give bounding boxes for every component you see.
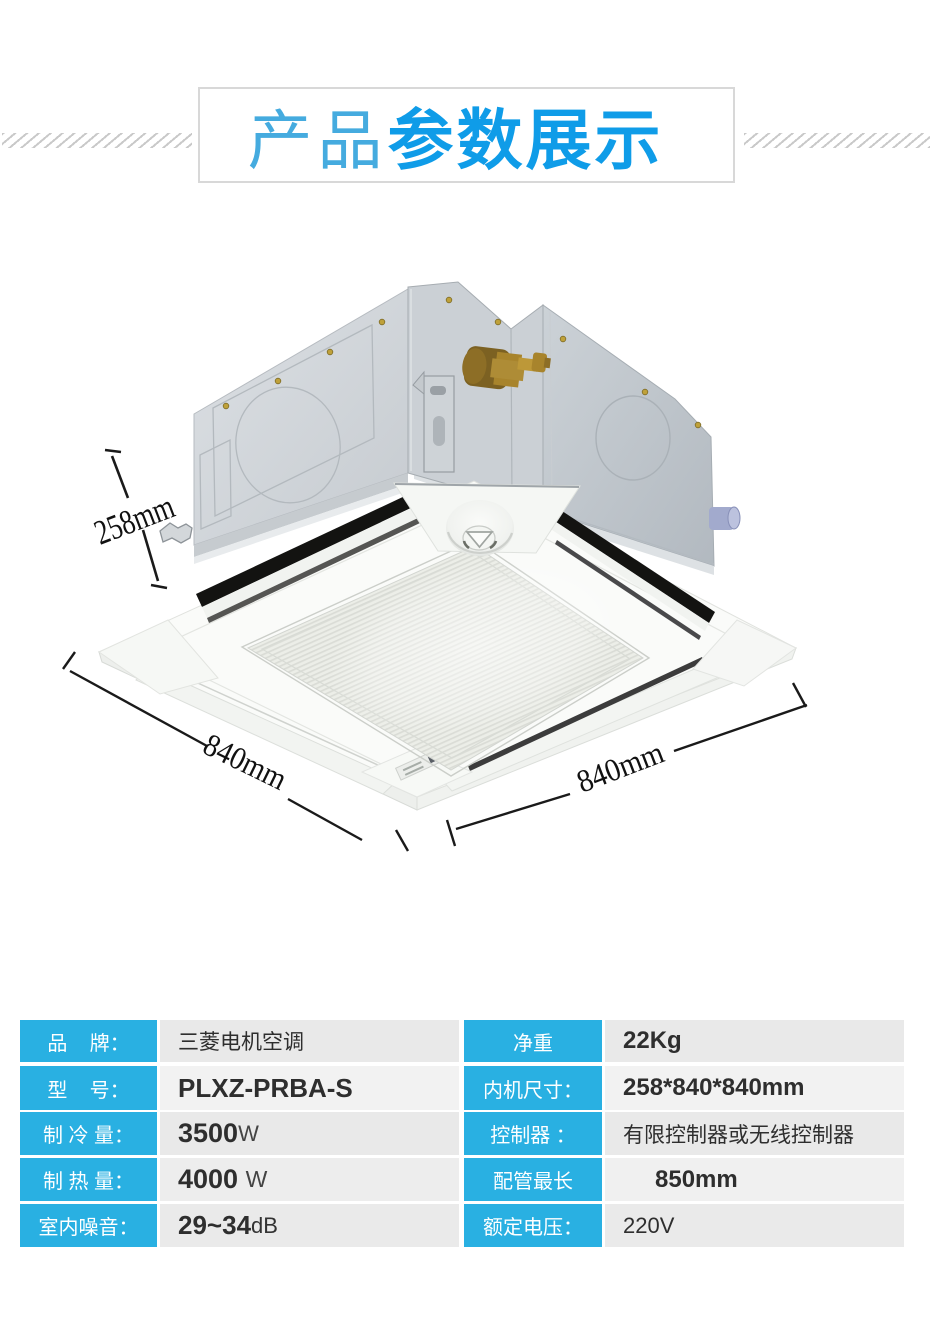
svg-text:840mm: 840mm xyxy=(572,735,669,800)
svg-text:258mm: 258mm xyxy=(89,486,180,552)
